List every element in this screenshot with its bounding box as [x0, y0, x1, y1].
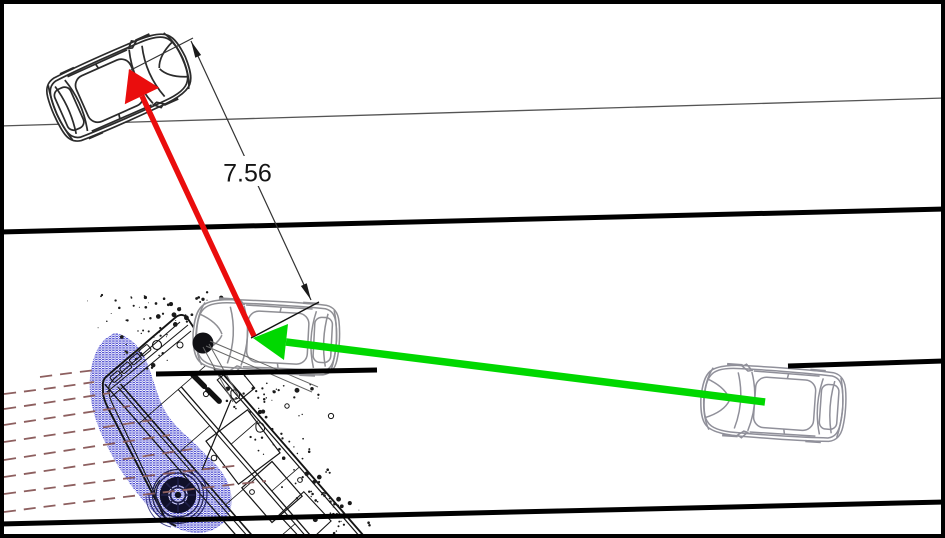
svg-text:7.56: 7.56: [223, 160, 272, 188]
